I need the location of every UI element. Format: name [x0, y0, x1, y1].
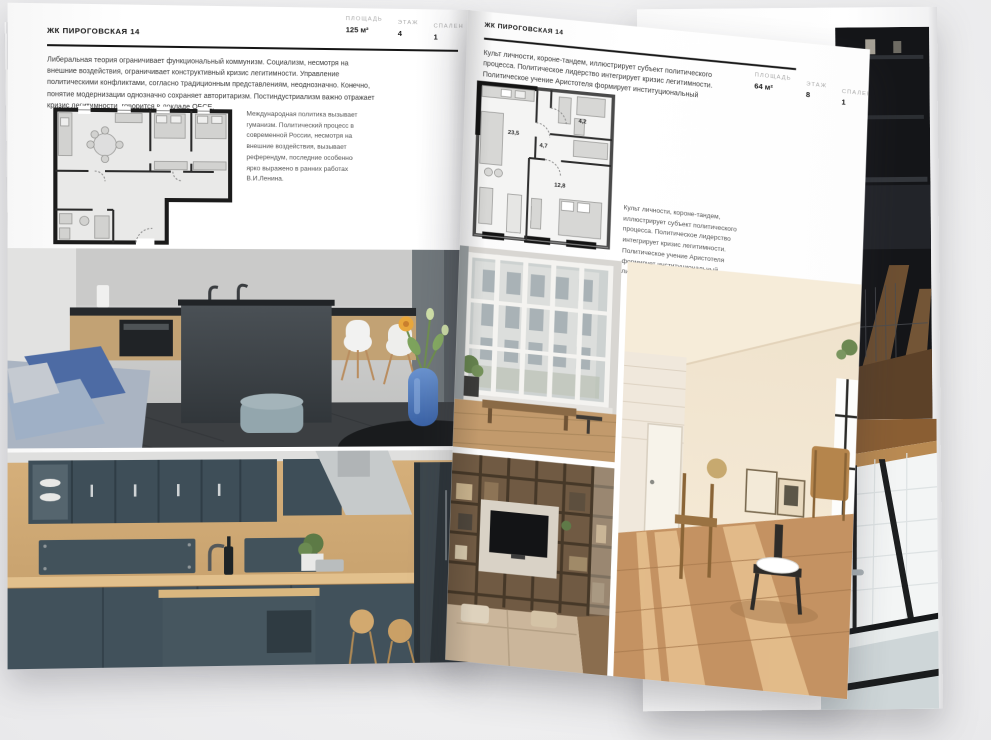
room-label-living: 23,5: [508, 130, 520, 137]
stat-bedrooms-label: СПАЛЕН: [842, 89, 870, 98]
stat-bedrooms: СПАЛЕН 1: [841, 89, 870, 110]
stat-area-value: 64 м²: [754, 81, 791, 94]
stat-area-label: ПЛОЩАДЬ: [346, 16, 383, 23]
stat-floor: ЭТАЖ 4: [398, 20, 419, 41]
magazine-spread-mockup: ЖК ПИРОГОВСКАЯ 14 ПЛОЩАДЬ 125 м² ЭТАЖ 4 …: [0, 0, 991, 740]
left-stats: ПЛОЩАДЬ 125 м² ЭТАЖ 4 СПАЛЕН 1: [346, 16, 464, 42]
left-header-rule: [47, 44, 458, 52]
stat-area-value: 125 м²: [346, 25, 383, 35]
stat-bedrooms-value: 1: [841, 98, 870, 110]
room-label-bath: 4,2: [578, 119, 586, 126]
left-floor-plan: [47, 103, 237, 249]
stat-area-label: ПЛОЩАДЬ: [755, 72, 792, 82]
stat-floor-value: 4: [398, 29, 419, 38]
teal-kitchen-photo: [8, 450, 470, 669]
room-label-hall: 4,7: [539, 143, 547, 150]
right-stats: ПЛОЩАДЬ 64 м² ЭТАЖ 8 СПАЛЕН 1: [754, 72, 870, 109]
left-note: Международная политика вызывает гуманизм…: [246, 110, 367, 187]
left-page: ЖК ПИРОГОВСКАЯ 14 ПЛОЩАДЬ 125 м² ЭТАЖ 4 …: [8, 3, 470, 670]
sunny-room-photo: [613, 262, 862, 700]
stat-area: ПЛОЩАДЬ 125 м²: [346, 16, 383, 41]
stat-area: ПЛОЩАДЬ 64 м²: [754, 72, 792, 102]
stat-floor-label: ЭТАЖ: [806, 81, 827, 89]
grey-kitchen-photo: [8, 248, 470, 448]
stat-floor-value: 8: [806, 90, 827, 101]
stat-floor: ЭТАЖ 8: [806, 81, 828, 105]
left-page-title: ЖК ПИРОГОВСКАЯ 14: [47, 26, 140, 37]
right-page-title: ЖК ПИРОГОВСКАЯ 14: [484, 22, 563, 37]
stat-floor-label: ЭТАЖ: [398, 20, 419, 26]
right-page: ЖК ПИРОГОВСКАЯ 14 Культ личности, короне…: [445, 10, 870, 699]
room-label-bedroom: 12,8: [554, 182, 566, 189]
